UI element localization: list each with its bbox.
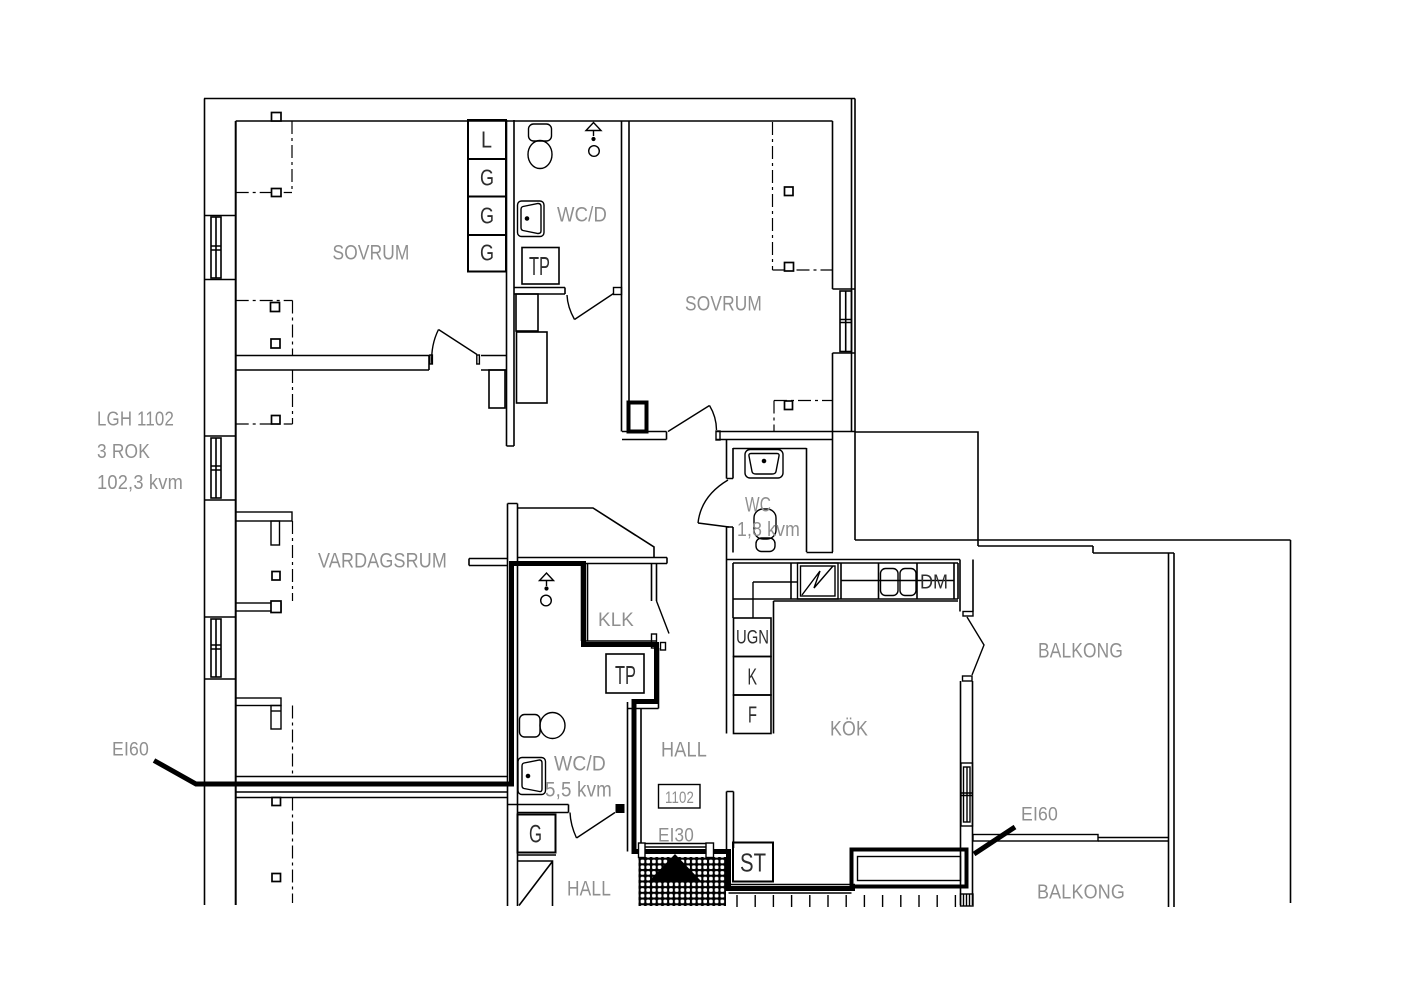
svg-text:WC: WC (745, 494, 771, 517)
svg-text:LGH 1102: LGH 1102 (97, 409, 174, 431)
svg-text:KLK: KLK (598, 609, 634, 631)
svg-text:VARDAGSRUM: VARDAGSRUM (318, 550, 447, 573)
svg-text:EI60: EI60 (1021, 805, 1058, 826)
svg-text:BALKONG: BALKONG (1037, 882, 1125, 904)
svg-text:G: G (480, 203, 494, 229)
svg-text:KÖK: KÖK (830, 718, 868, 741)
svg-text:1,8 kvm: 1,8 kvm (737, 519, 800, 541)
svg-text:EI60: EI60 (112, 740, 149, 761)
svg-text:ST: ST (740, 848, 766, 878)
svg-text:L: L (481, 127, 492, 153)
svg-text:K: K (748, 664, 758, 690)
svg-text:1102: 1102 (665, 788, 694, 807)
svg-text:BALKONG: BALKONG (1038, 640, 1123, 663)
svg-text:F: F (748, 702, 757, 728)
svg-text:G: G (480, 165, 494, 191)
svg-text:G: G (480, 240, 494, 266)
svg-text:102,3 kvm: 102,3 kvm (97, 472, 183, 494)
svg-text:WC/D: WC/D (554, 753, 606, 776)
svg-text:HALL: HALL (567, 878, 611, 901)
svg-text:UGN: UGN (736, 628, 769, 649)
svg-text:SOVRUM: SOVRUM (685, 293, 762, 316)
svg-text:SOVRUM: SOVRUM (333, 242, 410, 265)
svg-text:HALL: HALL (661, 739, 707, 762)
svg-text:WC/D: WC/D (557, 204, 607, 227)
svg-text:G: G (529, 821, 542, 849)
svg-text:TP: TP (529, 251, 550, 281)
svg-text:5,5 kvm: 5,5 kvm (545, 779, 612, 802)
svg-text:TP: TP (615, 660, 636, 690)
svg-text:3 ROK: 3 ROK (97, 441, 150, 463)
svg-text:DM: DM (920, 572, 948, 594)
